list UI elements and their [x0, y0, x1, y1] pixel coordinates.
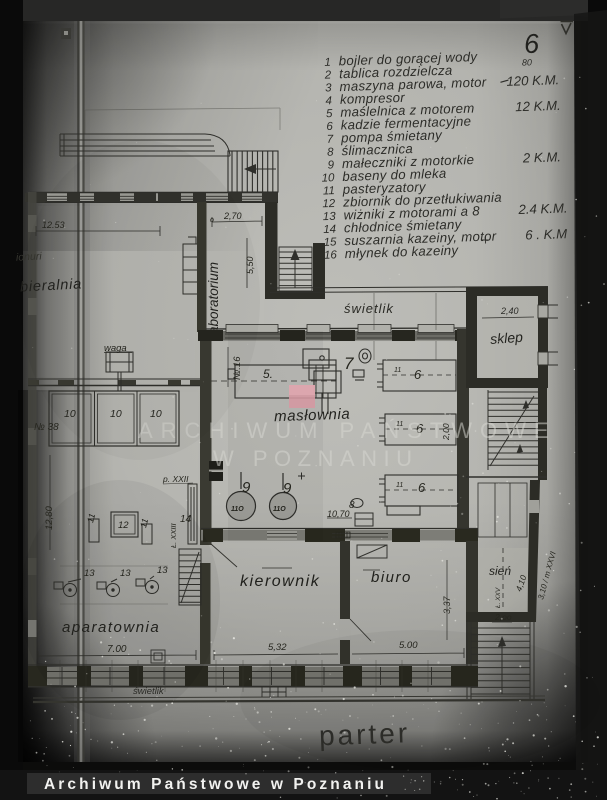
svg-text:11: 11 [396, 482, 403, 489]
svg-text:120 K.M.: 120 K.M. [506, 72, 559, 89]
svg-text:4: 4 [325, 95, 332, 107]
svg-text:16: 16 [324, 249, 338, 261]
svg-text:10,70: 10,70 [327, 509, 350, 519]
svg-text:1: 1 [324, 57, 331, 69]
svg-text:14: 14 [323, 224, 336, 236]
svg-text:Ł. XXV: Ł. XXV [495, 587, 502, 608]
svg-text:3: 3 [325, 82, 332, 94]
svg-text:5: 5 [326, 108, 333, 120]
svg-text:2: 2 [324, 69, 332, 81]
svg-text:6: 6 [414, 367, 422, 382]
svg-text:6: 6 [326, 121, 333, 133]
svg-text:p. XXII: p. XXII [162, 474, 189, 484]
svg-text:80: 80 [522, 57, 532, 67]
svg-text:2.4 K.M.: 2.4 K.M. [517, 200, 568, 217]
svg-text:Archiwum Państwowe w Poznaniu: Archiwum Państwowe w Poznaniu [44, 776, 387, 793]
svg-text:sień: sień [489, 564, 511, 578]
svg-text:6 . K.M: 6 . K.M [525, 226, 567, 242]
svg-text:12: 12 [322, 198, 336, 210]
svg-text:8: 8 [327, 146, 334, 158]
svg-text:11: 11 [394, 367, 401, 374]
svg-text:biuro: biuro [371, 569, 412, 586]
svg-text:sklep: sklep [490, 329, 524, 347]
svg-text:7: 7 [327, 134, 334, 146]
svg-text:15: 15 [323, 236, 337, 248]
svg-text:13: 13 [323, 211, 337, 223]
svg-text:2,oo: 2,oo [494, 612, 512, 622]
svg-text:świetlik: świetlik [344, 301, 394, 316]
svg-text:3,37: 3,37 [442, 595, 452, 614]
svg-text:6: 6 [418, 480, 426, 495]
svg-text:2,40: 2,40 [500, 306, 519, 316]
svg-text:kierownik: kierownik [240, 573, 320, 590]
svg-text:10: 10 [321, 172, 335, 184]
svg-text:№ 38: № 38 [34, 422, 59, 433]
svg-text:W POZNANIU: W POZNANIU [213, 446, 419, 471]
svg-text:9: 9 [327, 159, 334, 171]
svg-text:11: 11 [323, 185, 335, 197]
svg-text:5,32: 5,32 [268, 642, 287, 653]
svg-text:12 K.M.: 12 K.M. [515, 98, 561, 114]
